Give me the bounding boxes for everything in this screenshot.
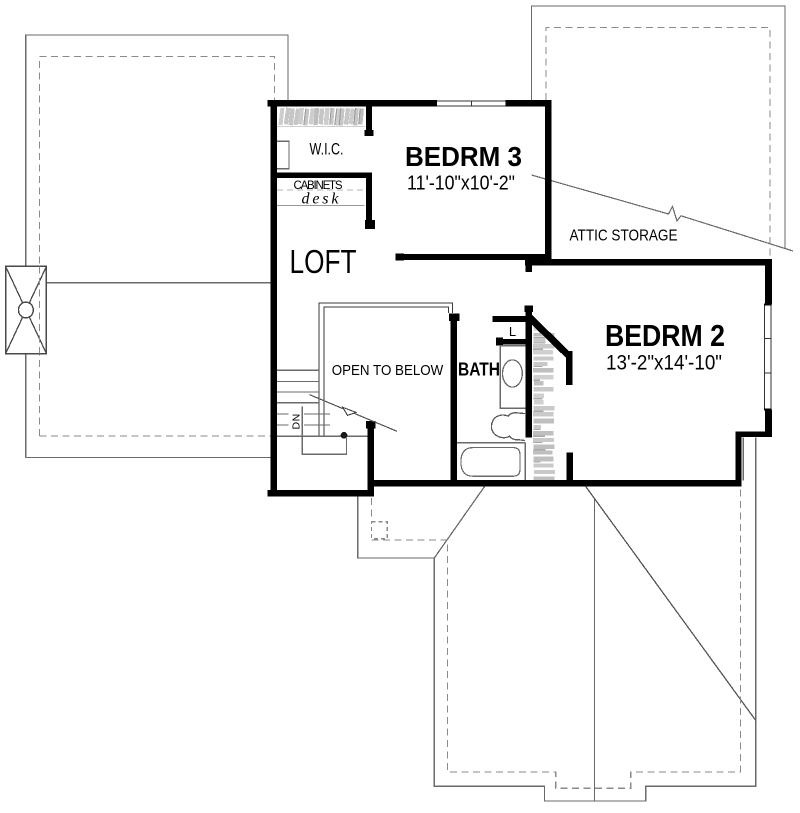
svg-text:11'-10"x10'-2": 11'-10"x10'-2" bbox=[407, 173, 515, 195]
svg-text:DN: DN bbox=[291, 413, 303, 429]
svg-text:BATH: BATH bbox=[458, 360, 500, 380]
svg-text:L: L bbox=[509, 324, 516, 339]
svg-text:BEDRM 3: BEDRM 3 bbox=[405, 141, 522, 172]
svg-text:BEDRM 2: BEDRM 2 bbox=[605, 318, 725, 353]
svg-text:LOFT: LOFT bbox=[290, 243, 357, 280]
svg-text:ATTIC STORAGE: ATTIC STORAGE bbox=[570, 228, 678, 245]
svg-text:13'-2"x14'-10": 13'-2"x14'-10" bbox=[606, 352, 722, 375]
svg-text:OPEN TO BELOW: OPEN TO BELOW bbox=[332, 362, 444, 379]
svg-text:W.I.C.: W.I.C. bbox=[310, 140, 344, 159]
